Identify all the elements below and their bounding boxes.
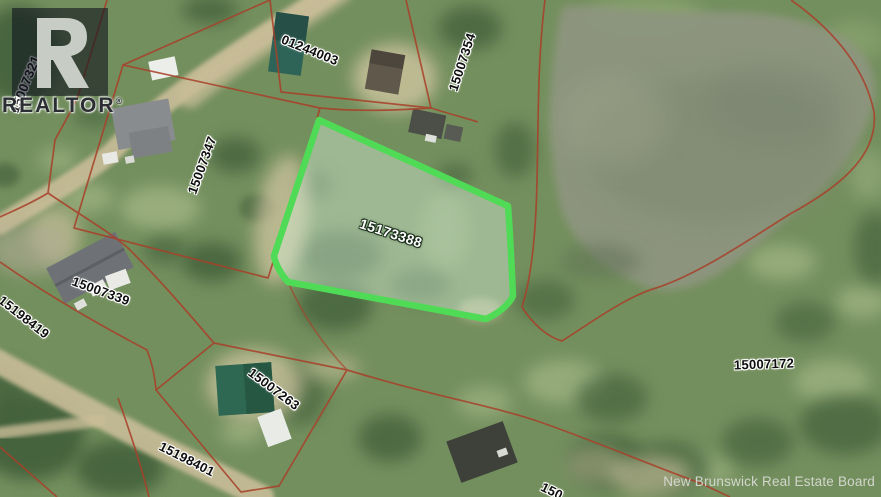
satellite-imagery [0,0,881,497]
brown-building [365,49,405,94]
realtor-wordmark: REALTOR® [2,94,128,118]
aerial-parcel-map[interactable]: 15007321 01244003 15007354 15007347 1517… [0,0,881,497]
registered-trademark-icon: ® [116,96,123,106]
map-attribution: New Brunswick Real Estate Board [663,474,875,489]
realtor-logo: REALTOR® [0,0,130,125]
realtor-r-icon [12,8,108,96]
green-roof-house [215,362,274,416]
